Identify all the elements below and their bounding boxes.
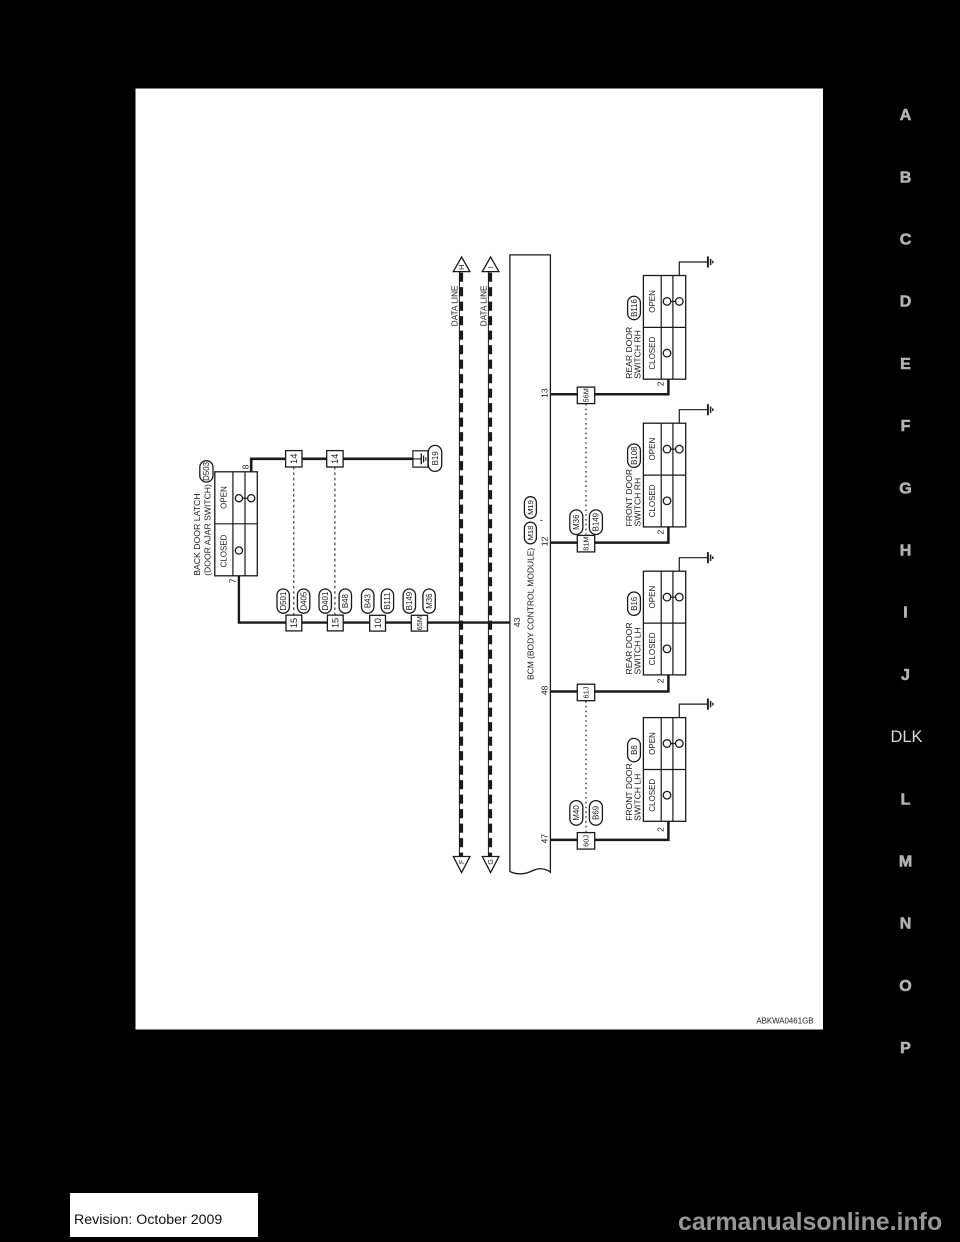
svg-text:14: 14 — [330, 454, 340, 464]
svg-text:48: 48 — [540, 685, 550, 695]
svg-text:61J: 61J — [582, 686, 591, 698]
svg-text:F: F — [901, 418, 911, 435]
svg-text:I: I — [486, 266, 495, 268]
svg-text:ABKWA0461GB: ABKWA0461GB — [756, 1017, 813, 1026]
svg-text:D: D — [900, 294, 912, 311]
svg-text:G: G — [899, 480, 911, 497]
svg-text:2: 2 — [656, 381, 666, 386]
svg-text:DATA LINE: DATA LINE — [451, 285, 460, 326]
svg-text:M36: M36 — [572, 514, 581, 530]
svg-text:15: 15 — [331, 618, 341, 628]
svg-text:OPEN: OPEN — [648, 732, 657, 755]
svg-text:H: H — [900, 543, 912, 560]
svg-text:SWITCH RH: SWITCH RH — [633, 478, 643, 527]
svg-text:SWITCH LH: SWITCH LH — [633, 774, 643, 821]
svg-text:B48: B48 — [341, 593, 350, 608]
svg-text:56M: 56M — [582, 388, 591, 402]
svg-text:E: E — [900, 356, 911, 373]
svg-text:J: J — [901, 667, 910, 684]
svg-text:O: O — [899, 978, 911, 995]
svg-text:B111: B111 — [383, 592, 392, 609]
svg-text:H: H — [457, 265, 466, 270]
svg-text:P: P — [900, 1040, 911, 1057]
svg-text:B116: B116 — [630, 298, 639, 316]
svg-text:12: 12 — [540, 536, 550, 546]
svg-text:81M: 81M — [582, 536, 591, 550]
svg-text:D501: D501 — [279, 592, 288, 611]
svg-text:DLK: DLK — [890, 728, 922, 746]
svg-text:2: 2 — [656, 827, 666, 832]
svg-text:B108: B108 — [630, 446, 639, 465]
svg-text:SWITCH RH: SWITCH RH — [633, 330, 643, 379]
svg-text:carmanualsonline.info: carmanualsonline.info — [678, 1208, 942, 1236]
svg-text:(DOOR AJAR SWITCH): (DOOR AJAR SWITCH) — [202, 484, 212, 576]
svg-text:B149: B149 — [405, 591, 414, 610]
svg-text:BACK DOOR LATCH: BACK DOOR LATCH — [192, 493, 202, 575]
svg-text:B: B — [900, 169, 912, 186]
svg-text:65M: 65M — [415, 616, 424, 630]
svg-text:14: 14 — [289, 454, 299, 464]
svg-text:C: C — [900, 232, 912, 249]
svg-text:,: , — [533, 519, 544, 522]
svg-text:CLOSED: CLOSED — [648, 337, 657, 370]
svg-text:15: 15 — [289, 618, 299, 628]
svg-text:2: 2 — [656, 678, 666, 683]
svg-text:M19: M19 — [526, 500, 535, 515]
svg-text:BCM (BODY CONTROL MODULE): BCM (BODY CONTROL MODULE) — [525, 548, 535, 680]
svg-text:D401: D401 — [321, 592, 330, 611]
svg-text:B43: B43 — [364, 593, 373, 608]
svg-text:D503: D503 — [202, 461, 211, 480]
svg-text:B8: B8 — [630, 745, 639, 755]
svg-text:M36: M36 — [425, 593, 434, 609]
svg-text:OPEN: OPEN — [648, 290, 657, 313]
svg-text:2: 2 — [656, 530, 666, 535]
svg-text:60J: 60J — [582, 835, 591, 847]
svg-text:I: I — [903, 605, 907, 622]
svg-text:M: M — [899, 854, 912, 871]
svg-text:CLOSED: CLOSED — [648, 779, 657, 812]
svg-text:A: A — [900, 107, 912, 124]
svg-text:7: 7 — [227, 578, 237, 583]
svg-text:CLOSED: CLOSED — [648, 484, 657, 517]
svg-text:D405: D405 — [299, 591, 308, 610]
svg-text:L: L — [901, 791, 911, 808]
svg-text:N: N — [900, 916, 912, 933]
svg-text:OPEN: OPEN — [648, 438, 657, 461]
svg-text:M18: M18 — [526, 526, 535, 541]
svg-text:B19: B19 — [431, 451, 440, 466]
svg-text:Revision: October 2009: Revision: October 2009 — [74, 1212, 222, 1228]
svg-text:43: 43 — [512, 617, 522, 627]
svg-text:13: 13 — [540, 388, 550, 398]
svg-text:10: 10 — [373, 618, 383, 628]
svg-text:B69: B69 — [592, 805, 601, 820]
svg-text:DATA LINE: DATA LINE — [479, 285, 488, 326]
svg-text:8: 8 — [240, 464, 250, 469]
svg-text:47: 47 — [540, 834, 550, 844]
svg-text:CLOSED: CLOSED — [648, 632, 657, 665]
svg-text:M40: M40 — [572, 805, 581, 821]
svg-text:OPEN: OPEN — [648, 586, 657, 609]
svg-text:B149: B149 — [592, 512, 601, 531]
svg-text:CLOSED: CLOSED — [219, 534, 228, 567]
svg-text:OPEN: OPEN — [219, 486, 228, 509]
svg-text:SWITCH LH: SWITCH LH — [633, 627, 643, 674]
svg-text:G: G — [486, 859, 495, 865]
svg-text:F: F — [457, 859, 466, 864]
svg-text:B16: B16 — [630, 596, 639, 611]
